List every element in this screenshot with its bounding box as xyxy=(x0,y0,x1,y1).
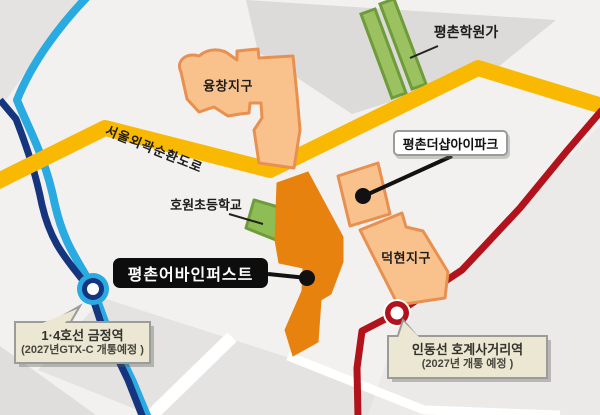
hogye-station-note: (2027년 개통 예정 ) xyxy=(422,358,514,372)
hogye-station-label: 인동선 호계사거리역 (2027년 개통 예정 ) xyxy=(388,336,547,378)
location-map: 서울외곽순환도로 융창지구 덕현지구 평촌학원가 호원초등학교 평촌더샵아이파크… xyxy=(0,0,600,415)
urbain-pointer-dot xyxy=(299,270,315,286)
yungchang-district-label: 융창지구 xyxy=(203,76,253,95)
urbain-label: 평촌어바인퍼스트 xyxy=(128,261,254,285)
geumjeong-station-label: 1·4호선 금정역 (2027년GTX-C 개통예정 ) xyxy=(15,322,150,363)
thesharp-label-box: 평촌더샵아이파크 xyxy=(393,130,508,156)
elementary-school-label: 호원초등학교 xyxy=(170,195,242,214)
geumjeong-station-note: (2027년GTX-C 개통예정 ) xyxy=(21,344,144,358)
urbain-label-box: 평촌어바인퍼스트 xyxy=(113,258,268,288)
thesharp-label: 평촌더샵아이파크 xyxy=(403,134,499,153)
academy-street-label: 평촌학원가 xyxy=(434,22,498,42)
geumjeong-station-marker xyxy=(77,273,109,305)
thesharp-pointer-dot xyxy=(355,188,371,204)
hogye-station-marker xyxy=(383,299,411,327)
hogye-station-name: 인동선 호계사거리역 xyxy=(412,342,523,358)
geumjeong-station-name: 1·4호선 금정역 xyxy=(41,328,123,344)
deokhyeon-district-label: 덕현지구 xyxy=(381,248,431,267)
